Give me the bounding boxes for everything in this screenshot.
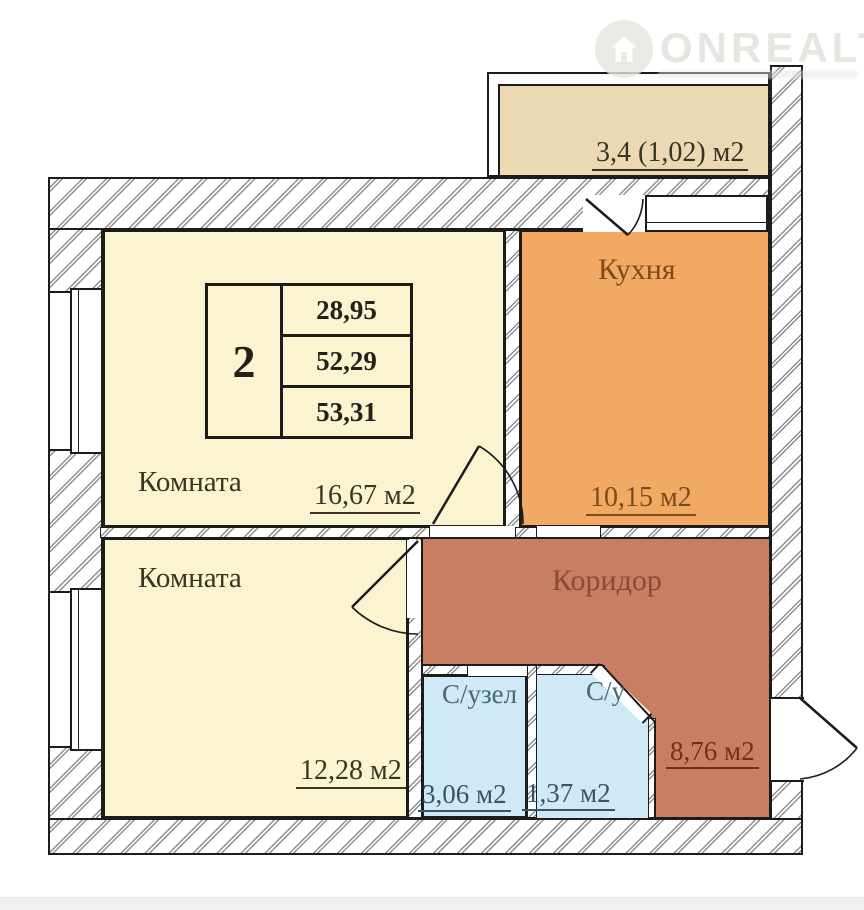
- corridor-area: 8,76 м2: [666, 736, 759, 767]
- room-count-cell: 2: [208, 286, 283, 436]
- room2-area: 12,28 м2: [296, 755, 406, 787]
- table-row: 28,95: [283, 286, 410, 337]
- balcony-area-value: 3,4 (1,02) м2: [592, 137, 748, 171]
- door-opening-room2: [407, 540, 423, 618]
- entrance-door-opening: [769, 697, 804, 782]
- partition-h-right: [600, 527, 770, 538]
- partition-h-left: [100, 527, 430, 538]
- bathroom-label: С/узел: [442, 679, 517, 710]
- window1-frame: [70, 288, 103, 454]
- balcony-window: [645, 195, 768, 232]
- corridor-label: Коридор: [552, 564, 662, 598]
- house-icon: [607, 32, 641, 66]
- partition-bath-top-left: [422, 665, 468, 675]
- watermark-subline: [658, 70, 858, 79]
- table-row: 52,29: [283, 337, 410, 388]
- watermark-brand: ONREALT: [660, 24, 864, 72]
- wc-label: С/у: [586, 676, 625, 707]
- partition-room1-kitchen: [505, 230, 520, 530]
- watermark-logo: [595, 20, 653, 78]
- door-opening-kitchen: [537, 526, 600, 539]
- room2-label: Комната: [138, 562, 242, 595]
- partition-h-mid: [515, 527, 537, 538]
- wall-left: [48, 177, 103, 855]
- partition-wc-right: [648, 718, 656, 818]
- balcony-area-label: 3,4 (1,02) м2: [592, 137, 748, 169]
- unit-spec-table: 2 28,95 52,29 53,31: [205, 283, 413, 439]
- bathroom-area: 3,06 м2: [418, 779, 511, 810]
- room1-label: Комната: [138, 466, 242, 499]
- door-opening-bathroom: [468, 664, 527, 676]
- wc-area: 1,37 м2: [522, 778, 615, 809]
- areas-column: 28,95 52,29 53,31: [283, 286, 410, 436]
- wall-bottom: [48, 818, 803, 855]
- kitchen-label: Кухня: [598, 253, 676, 287]
- page-bottom-edge: [0, 897, 864, 910]
- room1-area: 16,67 м2: [310, 480, 420, 512]
- door-opening-room1: [430, 526, 515, 539]
- table-row: 53,31: [283, 388, 410, 436]
- window2-frame: [70, 588, 103, 751]
- floor-plan-page: 3,4 (1,02) м2: [0, 0, 864, 910]
- kitchen-area: 10,15 м2: [586, 482, 696, 514]
- balcony-door-opening: [583, 195, 645, 232]
